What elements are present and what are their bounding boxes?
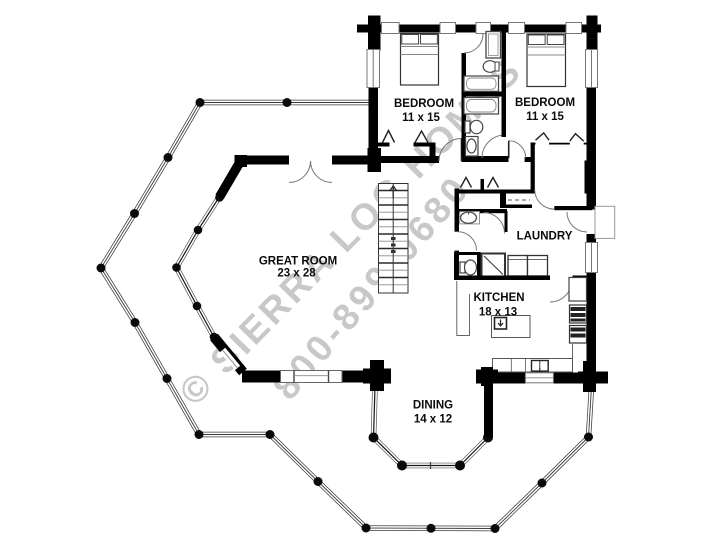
svg-text:18 x 13: 18 x 13 bbox=[479, 307, 517, 319]
svg-text:BEDROOM: BEDROOM bbox=[394, 98, 454, 110]
svg-text:KITCHEN: KITCHEN bbox=[473, 292, 524, 304]
svg-text:GREAT ROOM: GREAT ROOM bbox=[259, 256, 337, 268]
svg-text:11 x 15: 11 x 15 bbox=[402, 112, 440, 124]
svg-text:23 x 28: 23 x 28 bbox=[277, 268, 316, 280]
svg-text:11 x 15: 11 x 15 bbox=[526, 111, 564, 123]
svg-text:LAUNDRY: LAUNDRY bbox=[517, 231, 573, 243]
svg-text:BEDROOM: BEDROOM bbox=[515, 97, 575, 109]
svg-text:14 x 12: 14 x 12 bbox=[414, 414, 452, 426]
svg-text:DINING: DINING bbox=[413, 400, 453, 412]
